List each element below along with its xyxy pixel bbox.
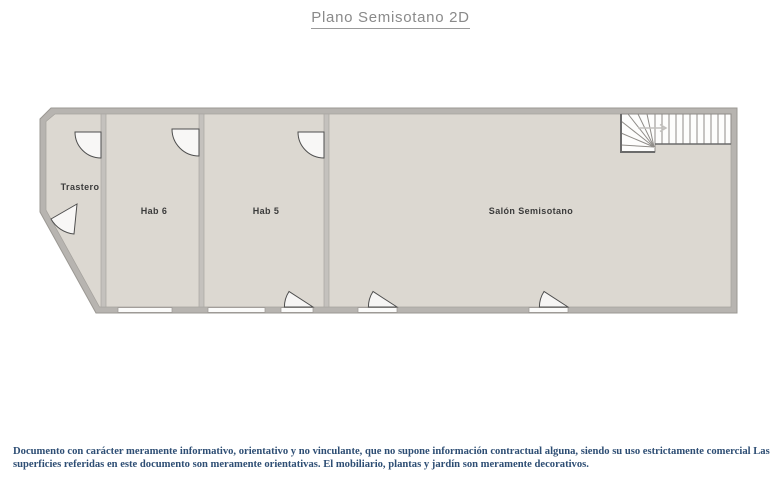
wall-hab5-salon — [324, 114, 329, 307]
stairs-straight-flight — [655, 114, 731, 144]
floor-plan: Trastero Hab 6 Hab 5 Salón Semisotano — [0, 0, 781, 480]
window-4 — [358, 308, 397, 313]
window-1 — [118, 308, 172, 313]
room-label-hab6: Hab 6 — [141, 206, 168, 216]
room-label-salon: Salón Semisotano — [489, 206, 573, 216]
disclaimer-line-2: superficies referidas en este documento … — [13, 459, 775, 472]
floor-plan-drawing — [0, 0, 781, 480]
disclaimer-line-1: Documento con carácter meramente informa… — [13, 446, 775, 459]
window-3 — [281, 308, 313, 313]
window-2 — [208, 308, 265, 313]
disclaimer-text: Documento con carácter meramente informa… — [13, 446, 775, 472]
wall-trastero-hab6 — [101, 114, 106, 307]
room-label-trastero: Trastero — [61, 182, 100, 192]
wall-hab6-hab5 — [199, 114, 204, 307]
window-5 — [529, 308, 568, 313]
room-label-hab5: Hab 5 — [253, 206, 280, 216]
